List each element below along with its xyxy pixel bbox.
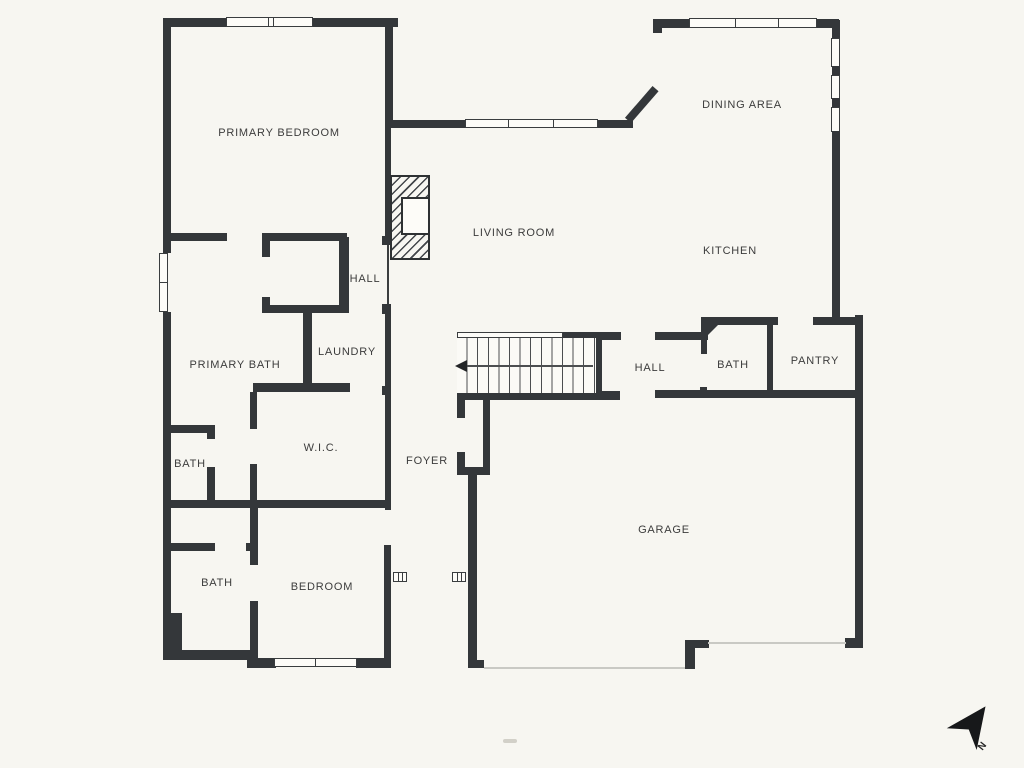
- window-mullion: [553, 120, 554, 127]
- wall-segment: [163, 18, 171, 253]
- wall-segment: [163, 650, 253, 660]
- window: [226, 17, 313, 27]
- wall-segment: [385, 395, 391, 510]
- opening-line: [387, 245, 389, 305]
- garage-door-line: [708, 642, 846, 644]
- wall-segment: [767, 317, 773, 397]
- room-label-living-room: LIVING ROOM: [473, 227, 555, 239]
- wall-segment: [468, 660, 484, 668]
- door-jamb-line: [461, 573, 462, 581]
- wall-segment: [262, 241, 270, 257]
- door-jamb-line: [402, 573, 403, 581]
- wall-segment: [247, 658, 276, 668]
- door-jamb: [452, 572, 466, 582]
- stair-railing: [457, 332, 563, 338]
- window: [689, 18, 817, 28]
- floorplan: PRIMARY BEDROOM DINING AREA LIVING ROOM …: [0, 0, 1024, 768]
- wall-segment: [655, 390, 858, 398]
- window-mullion: [735, 19, 736, 27]
- wall-segment: [207, 467, 215, 505]
- door-jamb-line: [457, 573, 458, 581]
- wall-segment: [207, 425, 215, 439]
- room-label-bath-primary-wc: BATH: [174, 458, 206, 470]
- watermark-smudge: [503, 739, 517, 743]
- room-label-pantry: PANTRY: [791, 355, 839, 367]
- room-label-primary-bath: PRIMARY BATH: [190, 359, 281, 371]
- wall-segment: [168, 543, 215, 551]
- window-mullion: [273, 18, 274, 26]
- room-label-kitchen: KITCHEN: [703, 245, 757, 257]
- room-label-bedroom: BEDROOM: [291, 581, 353, 593]
- stair-direction-arrow: [455, 360, 467, 372]
- window: [274, 658, 357, 667]
- room-label-garage: GARAGE: [638, 524, 690, 536]
- wall-segment: [468, 475, 477, 668]
- wall-segment: [303, 313, 312, 389]
- wall-jamb: [382, 304, 391, 314]
- wall-jamb: [382, 386, 391, 395]
- stair-direction-line: [461, 365, 593, 367]
- wall-segment: [457, 400, 465, 418]
- wall-segment: [384, 545, 391, 668]
- wall-segment: [163, 500, 391, 508]
- room-label-wic: W.I.C.: [304, 442, 339, 454]
- wall-segment: [595, 333, 602, 400]
- wall-segment: [168, 233, 227, 241]
- wall-segment: [483, 400, 490, 475]
- wall-segment: [845, 638, 863, 648]
- room-label-laundry: LAUNDRY: [318, 346, 376, 358]
- wall-segment: [163, 312, 171, 615]
- window: [159, 253, 168, 312]
- north-label: N: [976, 740, 989, 752]
- room-label-foyer: FOYER: [406, 455, 448, 467]
- wall-segment: [685, 648, 695, 669]
- window-mullion: [778, 19, 779, 27]
- room-label-dining-area: DINING AREA: [702, 99, 782, 111]
- wall-segment: [250, 392, 257, 429]
- garage-door-line: [484, 667, 685, 669]
- wall-segment: [655, 332, 708, 340]
- wall-segment: [385, 120, 466, 128]
- window-mullion: [315, 659, 316, 666]
- room-label-bath-guest: BATH: [201, 577, 233, 589]
- north-arrow-icon: [941, 693, 1004, 756]
- window-mullion: [268, 18, 269, 26]
- wall-segment: [832, 20, 840, 39]
- window-mullion: [160, 282, 167, 283]
- wall-segment: [250, 507, 258, 565]
- window-mullion: [508, 120, 509, 127]
- room-label-hall-main: HALL: [635, 362, 666, 374]
- window: [831, 107, 840, 132]
- room-label-primary-bedroom: PRIMARY BEDROOM: [218, 127, 340, 139]
- door-jamb-line: [398, 573, 399, 581]
- wall-segment: [832, 131, 840, 317]
- wall-segment: [685, 640, 709, 648]
- room-label-hall-primary: HALL: [350, 273, 381, 285]
- wall-segment: [597, 120, 633, 128]
- wall-segment: [163, 613, 182, 652]
- door-jamb: [393, 572, 407, 582]
- wall-segment: [250, 464, 257, 507]
- wall-segment: [253, 383, 350, 392]
- window: [831, 75, 840, 99]
- window: [465, 119, 598, 128]
- room-label-bath-main: BATH: [717, 359, 749, 371]
- wall-segment: [339, 237, 349, 313]
- wall-segment: [653, 19, 691, 28]
- wall-segment: [385, 18, 393, 121]
- wall-segment-diagonal: [625, 86, 659, 123]
- wall-segment: [385, 314, 391, 386]
- window: [831, 38, 840, 67]
- wall-segment: [163, 18, 227, 27]
- wall-segment: [246, 543, 251, 551]
- wall-segment: [262, 233, 347, 241]
- wall-segment: [262, 305, 349, 313]
- fireplace-firebox: [401, 197, 430, 235]
- wall-segment: [855, 315, 863, 648]
